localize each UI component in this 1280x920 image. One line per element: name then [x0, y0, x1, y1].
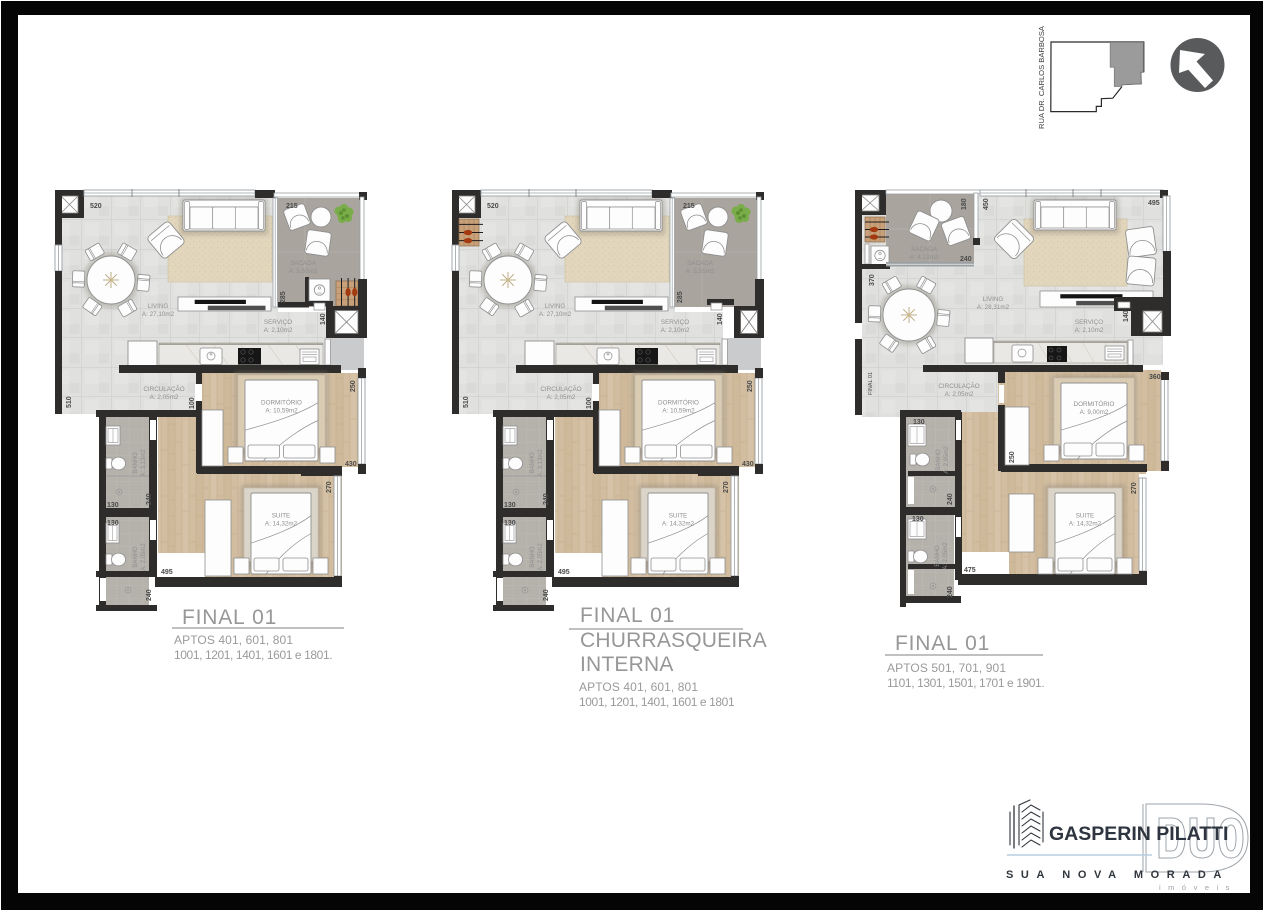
- svg-text:SUITE: SUITE: [1076, 512, 1095, 519]
- svg-text:130: 130: [913, 419, 925, 426]
- svg-text:FINAL 01: FINAL 01: [868, 372, 874, 395]
- svg-text:130: 130: [107, 520, 119, 527]
- svg-text:LIVING: LIVING: [983, 296, 1004, 303]
- svg-text:270: 270: [723, 481, 730, 493]
- svg-text:BANHO: BANHO: [936, 449, 942, 471]
- svg-text:DORMITÓRIO: DORMITÓRIO: [1074, 399, 1115, 408]
- svg-text:285: 285: [280, 291, 287, 303]
- svg-text:A: 2,05m2: A: 2,05m2: [538, 543, 544, 571]
- svg-text:BANHO: BANHO: [133, 546, 139, 568]
- svg-text:370: 370: [869, 274, 876, 286]
- svg-text:FINAL 01: FINAL 01: [182, 606, 277, 629]
- svg-text:CHURRASQUEIRA: CHURRASQUEIRA: [580, 629, 767, 652]
- svg-text:CIRCULAÇÃO: CIRCULAÇÃO: [143, 384, 184, 393]
- svg-text:520: 520: [90, 203, 102, 210]
- svg-text:215: 215: [683, 203, 695, 210]
- svg-text:240: 240: [543, 493, 550, 505]
- svg-text:270: 270: [1131, 482, 1138, 494]
- svg-text:DORMITÓRIO: DORMITÓRIO: [261, 397, 302, 406]
- svg-text:A: 14,32m2: A: 14,32m2: [265, 520, 298, 527]
- svg-text:1101, 1301, 1501, 1701 e 1901.: 1101, 1301, 1501, 1701 e 1901.: [887, 676, 1044, 690]
- svg-text:100: 100: [586, 397, 593, 409]
- svg-text:430: 430: [742, 461, 754, 468]
- svg-text:215: 215: [286, 203, 298, 210]
- svg-text:A: 28,31m2: A: 28,31m2: [977, 304, 1010, 311]
- svg-text:BANHO: BANHO: [530, 546, 536, 568]
- svg-text:APTOS 401, 601, 801: APTOS 401, 601, 801: [174, 633, 293, 647]
- svg-text:1001, 1201, 1401, 1601 e 1801: 1001, 1201, 1401, 1601 e 1801: [579, 695, 735, 709]
- svg-text:FINAL 01: FINAL 01: [895, 632, 990, 655]
- svg-text:FINAL 01: FINAL 01: [580, 604, 675, 627]
- svg-text:140: 140: [717, 313, 724, 325]
- svg-text:A: 27,10m2: A: 27,10m2: [539, 311, 572, 318]
- svg-text:INTERNA: INTERNA: [580, 653, 674, 676]
- svg-text:RUA DR. CARLOS BARBOSA: RUA DR. CARLOS BARBOSA: [1037, 25, 1046, 129]
- svg-text:GASPERIN PILATTI: GASPERIN PILATTI: [1049, 823, 1228, 845]
- svg-text:SUA NOVA MORADA: SUA NOVA MORADA: [1006, 869, 1229, 881]
- svg-text:130: 130: [107, 502, 119, 509]
- svg-text:A: 2,10m2: A: 2,10m2: [661, 327, 690, 334]
- svg-text:A: 2,05m2: A: 2,05m2: [547, 394, 576, 401]
- svg-text:A: 2,05m2: A: 2,05m2: [945, 391, 974, 398]
- svg-text:250: 250: [350, 380, 357, 392]
- svg-text:A: 10,59m2: A: 10,59m2: [265, 407, 298, 414]
- svg-text:A: 4,13m2: A: 4,13m2: [910, 254, 939, 261]
- svg-text:130: 130: [504, 520, 516, 527]
- svg-text:140: 140: [320, 313, 327, 325]
- svg-text:CIRCULAÇÃO: CIRCULAÇÃO: [938, 381, 979, 390]
- svg-text:SERVIÇO: SERVIÇO: [661, 319, 689, 326]
- svg-text:BANHO: BANHO: [133, 452, 139, 474]
- svg-text:240: 240: [947, 586, 954, 598]
- svg-text:SUITE: SUITE: [669, 512, 688, 519]
- svg-text:LIVING: LIVING: [545, 303, 566, 310]
- svg-text:240: 240: [146, 589, 153, 601]
- svg-text:A: 3,13m2: A: 3,13m2: [141, 449, 147, 477]
- svg-text:180: 180: [961, 198, 968, 210]
- svg-text:240: 240: [543, 589, 550, 601]
- svg-text:A: 27,10m2: A: 27,10m2: [142, 311, 175, 318]
- svg-text:SERVIÇO: SERVIÇO: [1075, 319, 1103, 326]
- svg-text:imóveis: imóveis: [1159, 883, 1237, 892]
- svg-text:140: 140: [1123, 310, 1130, 322]
- svg-text:BANHO: BANHO: [935, 545, 941, 567]
- svg-text:130: 130: [912, 516, 924, 523]
- svg-text:520: 520: [487, 203, 499, 210]
- svg-text:250: 250: [1009, 451, 1016, 463]
- svg-text:A: 5,55m2: A: 5,55m2: [289, 268, 318, 275]
- svg-text:A: 10,59m2: A: 10,59m2: [662, 407, 695, 414]
- svg-text:SUITE: SUITE: [272, 512, 291, 519]
- svg-text:A: 2,05m2: A: 2,05m2: [141, 543, 147, 571]
- svg-text:A: 2,95m2: A: 2,95m2: [944, 446, 950, 474]
- svg-text:100: 100: [189, 397, 196, 409]
- svg-text:SERVIÇO: SERVIÇO: [264, 319, 292, 326]
- svg-text:SACADA: SACADA: [911, 246, 938, 253]
- svg-text:A: 14,32m2: A: 14,32m2: [662, 520, 695, 527]
- svg-text:450: 450: [983, 198, 990, 210]
- svg-text:A: 2,10m2: A: 2,10m2: [264, 327, 293, 334]
- svg-text:SACADA: SACADA: [290, 260, 317, 267]
- svg-text:510: 510: [66, 396, 73, 408]
- svg-text:1001, 1201, 1401, 1601 e 1801.: 1001, 1201, 1401, 1601 e 1801.: [174, 648, 332, 662]
- svg-text:CIRCULAÇÃO: CIRCULAÇÃO: [540, 384, 581, 393]
- svg-text:495: 495: [558, 569, 570, 576]
- svg-text:A: 2,05m2: A: 2,05m2: [150, 394, 179, 401]
- svg-text:BANHO: BANHO: [530, 452, 536, 474]
- svg-text:A: 5,55m2: A: 5,55m2: [686, 268, 715, 275]
- svg-text:495: 495: [161, 569, 173, 576]
- svg-text:DORMITÓRIO: DORMITÓRIO: [658, 397, 699, 406]
- svg-text:240: 240: [146, 493, 153, 505]
- svg-text:475: 475: [964, 567, 976, 574]
- svg-text:A: 14,32m2: A: 14,32m2: [1069, 520, 1102, 527]
- svg-text:130: 130: [504, 502, 516, 509]
- svg-text:SACADA: SACADA: [687, 260, 714, 267]
- svg-text:430: 430: [345, 461, 357, 468]
- svg-text:A: 9,00m2: A: 9,00m2: [1080, 409, 1109, 416]
- svg-text:A: 2,05m2: A: 2,05m2: [943, 542, 949, 570]
- svg-text:A: 2,10m2: A: 2,10m2: [1075, 327, 1104, 334]
- svg-text:240: 240: [947, 493, 954, 505]
- svg-text:APTOS 401, 601, 801: APTOS 401, 601, 801: [579, 680, 698, 694]
- svg-text:APTOS 501, 701, 901: APTOS 501, 701, 901: [887, 661, 1006, 675]
- svg-text:285: 285: [677, 291, 684, 303]
- svg-text:A: 3,13m2: A: 3,13m2: [538, 449, 544, 477]
- svg-text:495: 495: [1148, 200, 1160, 207]
- svg-text:510: 510: [463, 396, 470, 408]
- svg-text:240: 240: [960, 256, 972, 263]
- svg-text:270: 270: [326, 481, 333, 493]
- svg-text:LIVING: LIVING: [148, 303, 169, 310]
- svg-text:250: 250: [747, 380, 754, 392]
- svg-text:360: 360: [1149, 374, 1161, 381]
